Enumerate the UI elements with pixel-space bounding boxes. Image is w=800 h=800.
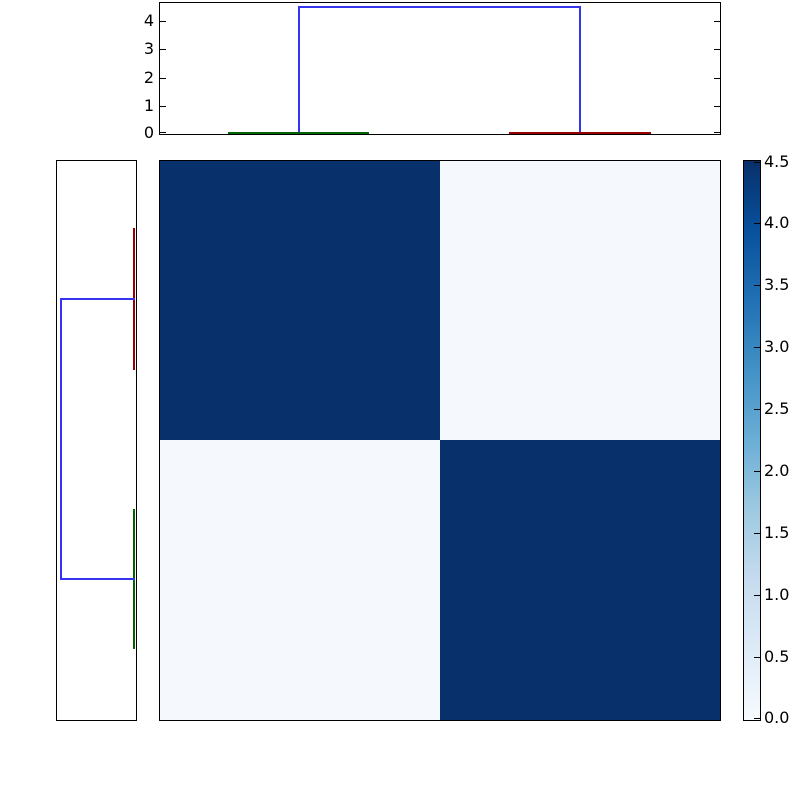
top-axis-right-tick-4	[714, 21, 720, 22]
colorbar-tick-0-5	[754, 657, 760, 658]
colorbar-tick-4-0	[754, 223, 760, 224]
top-dendrogram-cluster-green	[228, 132, 369, 134]
top-axis-label-2: 2	[120, 68, 154, 88]
colorbar-label-3-0: 3.0	[764, 337, 800, 357]
top-dendrogram-panel	[159, 2, 721, 135]
colorbar-tick-0-0	[754, 718, 760, 719]
colorbar-label-0-5: 0.5	[764, 647, 800, 667]
left-dendrogram-link-stem	[60, 298, 62, 580]
top-axis-right-tick-2	[714, 78, 720, 79]
colorbar-label-2-0: 2.0	[764, 461, 800, 481]
top-axis-label-0: 0	[120, 123, 154, 143]
colorbar-label-1-0: 1.0	[764, 585, 800, 605]
top-axis-label-4: 4	[120, 11, 154, 31]
top-axis-label-3: 3	[120, 39, 154, 59]
top-axis-right-tick-1	[714, 106, 720, 107]
colorbar-tick-2-5	[754, 409, 760, 410]
colorbar-tick-1-0	[754, 595, 760, 596]
top-axis-left-tick-2	[160, 78, 166, 79]
top-axis-left-tick-4	[160, 21, 166, 22]
top-axis-left-tick-3	[160, 49, 166, 50]
colorbar-tick-3-0	[754, 347, 760, 348]
colorbar-label-2-5: 2.5	[764, 399, 800, 419]
heatmap-cell-r0c1	[440, 161, 720, 440]
top-dendrogram-link-bridge	[298, 6, 581, 8]
colorbar-tick-2-0	[754, 471, 760, 472]
left-dendrogram-link-bottom-horizontal	[60, 578, 135, 580]
top-axis-right-tick-0	[714, 132, 720, 133]
top-dendrogram-cluster-red	[509, 132, 651, 134]
colorbar-label-1-5: 1.5	[764, 523, 800, 543]
heatmap-cell-r0c0	[160, 161, 440, 440]
top-dendrogram-link-left-vertical	[298, 6, 300, 134]
heatmap-cell-r1c1	[440, 440, 720, 720]
colorbar-tick-4-5	[754, 162, 760, 163]
clustermap-figure: 432104.54.03.53.02.52.01.51.00.50.0	[0, 0, 800, 800]
left-dendrogram-panel	[56, 160, 137, 721]
top-axis-left-tick-0	[160, 132, 166, 133]
colorbar-tick-1-5	[754, 533, 760, 534]
heatmap-cell-r1c0	[160, 440, 440, 720]
colorbar-tick-3-5	[754, 285, 760, 286]
colorbar-label-3-5: 3.5	[764, 275, 800, 295]
colorbar-gradient	[744, 161, 760, 720]
left-dendrogram-link-top-horizontal	[60, 298, 135, 300]
top-axis-label-1: 1	[120, 96, 154, 116]
colorbar-label-4-0: 4.0	[764, 213, 800, 233]
colorbar-label-4-5: 4.5	[764, 152, 800, 172]
top-dendrogram-link-right-vertical	[579, 6, 581, 134]
colorbar-label-0-0: 0.0	[764, 708, 800, 728]
top-axis-left-tick-1	[160, 106, 166, 107]
top-axis-right-tick-3	[714, 49, 720, 50]
